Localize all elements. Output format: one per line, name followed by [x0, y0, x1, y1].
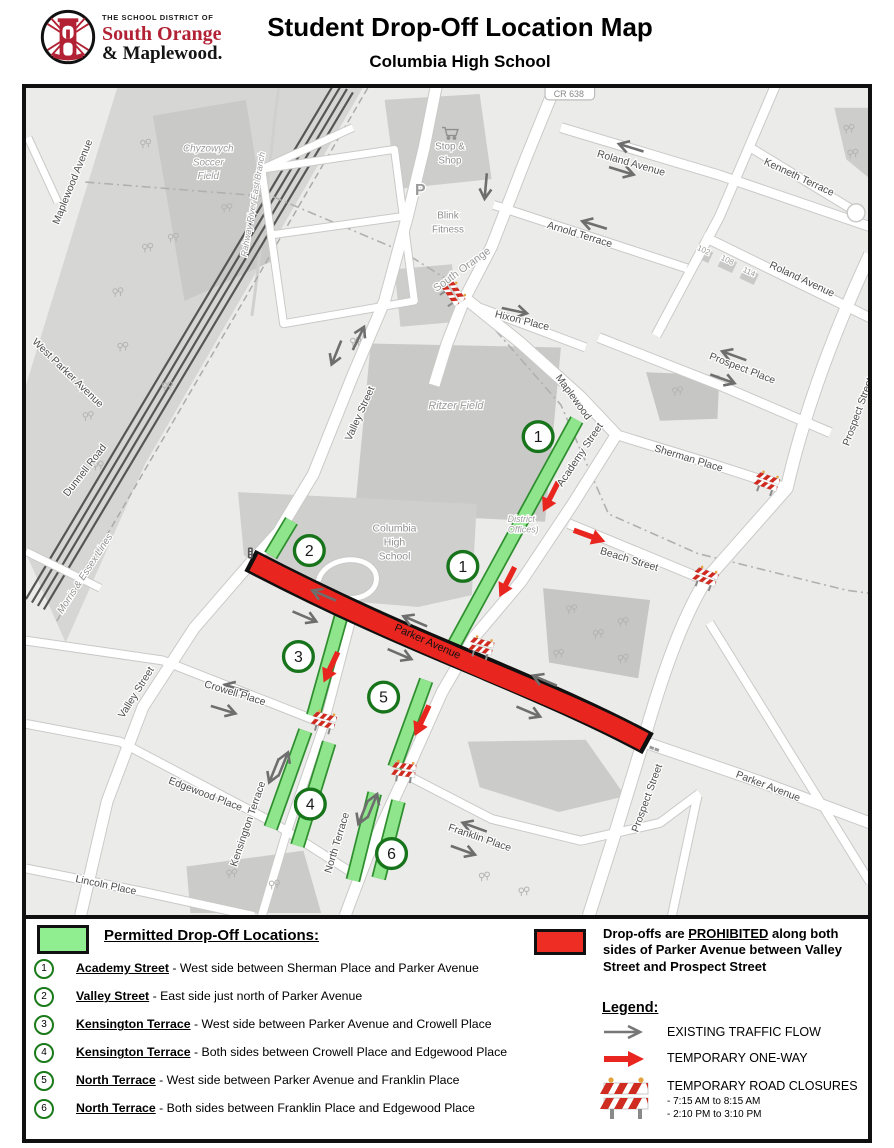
- permitted-item-1: 1Academy Street - West side between Sher…: [34, 959, 539, 981]
- dropoff-badge-number: 5: [379, 690, 388, 707]
- map-label: District: [508, 514, 536, 524]
- dropoff-badge-number: 1: [534, 429, 543, 446]
- map-label: Shop: [438, 155, 462, 166]
- map-label: Columbia: [373, 524, 417, 535]
- legend-heading: Legend:: [602, 1000, 658, 1016]
- item-street-6: North Terrace: [76, 1101, 156, 1115]
- item-badge-5: 5: [34, 1071, 54, 1091]
- legend-closures-label: TEMPORARY ROAD CLOSURES: [667, 1079, 858, 1093]
- map-label: Chyzowych: [183, 143, 234, 154]
- item-desc-5: - West side between Parker Avenue and Fr…: [159, 1073, 459, 1087]
- dropoff-badge-number: 2: [305, 543, 314, 560]
- cul-de-sac: [847, 204, 865, 222]
- map-frame: Maplewood AvenueWest Parker AvenueDunnel…: [22, 84, 872, 919]
- item-badge-1: 1: [34, 959, 54, 979]
- legend-closure-time-2: - 2:10 PM to 3:10 PM: [667, 1108, 762, 1122]
- map-label: Field: [198, 171, 220, 182]
- item-badge-4: 4: [34, 1043, 54, 1063]
- map-label: High: [384, 538, 406, 549]
- map-label: Stop &: [435, 141, 465, 152]
- prohibited-text: Drop-offs are PROHIBITED along both side…: [603, 926, 861, 975]
- permitted-item-2: 2Valley Street - East side just north of…: [34, 987, 539, 1009]
- map-label: Soccer: [193, 157, 224, 168]
- item-desc-6: - Both sides between Franklin Place and …: [159, 1101, 475, 1115]
- permitted-item-6: 6North Terrace - Both sides between Fran…: [34, 1099, 539, 1121]
- item-street-1: Academy Street: [76, 961, 169, 975]
- item-street-5: North Terrace: [76, 1073, 156, 1087]
- dropoff-badge-number: 1: [458, 559, 467, 576]
- prohibited-swatch: [534, 929, 586, 955]
- item-badge-6: 6: [34, 1099, 54, 1119]
- map-label: Offices): [508, 525, 539, 535]
- permitted-heading: Permitted Drop-Off Locations:: [104, 927, 319, 944]
- street-map[interactable]: Maplewood AvenueWest Parker AvenueDunnel…: [26, 88, 868, 915]
- prohibited-word: PROHIBITED: [688, 926, 768, 941]
- traffic-signal-icon: [248, 548, 253, 559]
- permitted-swatch: [37, 925, 89, 954]
- item-desc-1: - West side between Sherman Place and Pa…: [172, 961, 478, 975]
- one-way-arrow-icon: [600, 1050, 652, 1068]
- existing-flow-arrow-icon: [600, 1024, 652, 1040]
- legend-existing-label: EXISTING TRAFFIC FLOW: [667, 1025, 821, 1039]
- map-label: P: [415, 182, 426, 199]
- map-label: School: [379, 551, 411, 562]
- dropoff-badge-number: 4: [306, 797, 315, 814]
- dropoff-badge-number: 6: [387, 846, 396, 863]
- permitted-item-5: 5North Terrace - West side between Parke…: [34, 1071, 539, 1093]
- item-desc-3: - West side between Parker Avenue and Cr…: [194, 1017, 492, 1031]
- item-street-4: Kensington Terrace: [76, 1045, 191, 1059]
- prohibited-before: Drop-offs are: [603, 926, 688, 941]
- legend-panel: Permitted Drop-Off Locations: 1Academy S…: [22, 915, 872, 1143]
- map-label: CR 638: [554, 89, 584, 99]
- legend-oneway-label: TEMPORARY ONE-WAY: [667, 1051, 808, 1065]
- permitted-item-4: 4Kensington Terrace - Both sides between…: [34, 1043, 539, 1065]
- item-badge-3: 3: [34, 1015, 54, 1035]
- header-titles: Student Drop-Off Location Map Columbia H…: [190, 12, 730, 72]
- dropoff-badge-number: 3: [294, 649, 303, 666]
- item-street-3: Kensington Terrace: [76, 1017, 191, 1031]
- district-logo: [40, 9, 96, 65]
- drop-off-map-page: THE SCHOOL DISTRICT OF South Orange & Ma…: [0, 0, 894, 1148]
- item-desc-4: - Both sides between Crowell Place and E…: [194, 1045, 507, 1059]
- item-badge-2: 2: [34, 987, 54, 1007]
- permitted-item-3: 3Kensington Terrace - West side between …: [34, 1015, 539, 1037]
- map-label: Ritzer Field: [428, 400, 484, 412]
- item-street-2: Valley Street: [76, 989, 149, 1003]
- page-title: Student Drop-Off Location Map: [190, 12, 730, 43]
- item-desc-2: - East side just north of Parker Avenue: [153, 989, 363, 1003]
- legend-closure-time-1: - 7:15 AM to 8:15 AM: [667, 1095, 760, 1109]
- road-closure-barrier-icon: [600, 1077, 656, 1119]
- page-subtitle: Columbia High School: [190, 52, 730, 72]
- map-label: Fitness: [432, 225, 464, 236]
- map-label: Blink: [437, 211, 458, 222]
